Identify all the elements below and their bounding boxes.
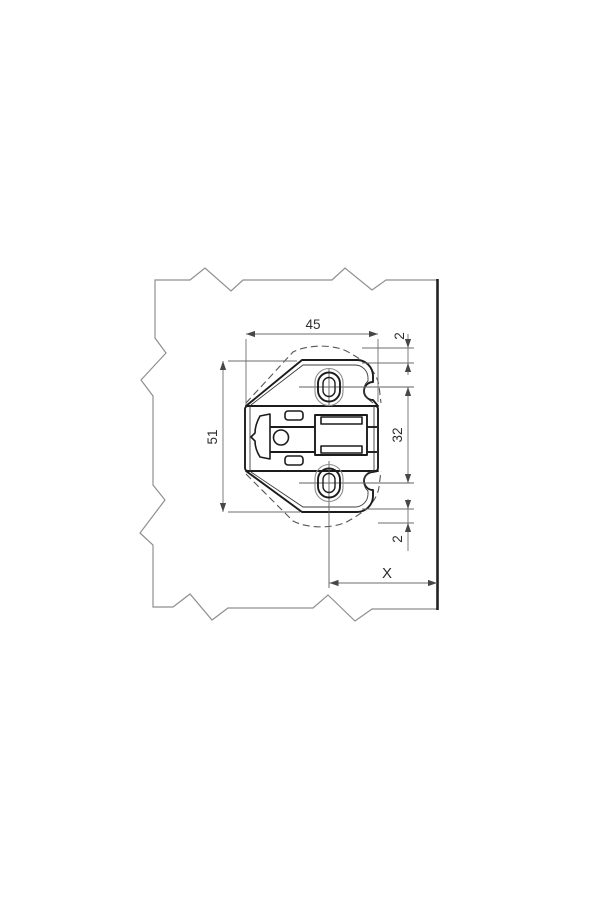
dim-2bot-arrow-lower [405,523,411,532]
dim-51-label: 51 [205,429,220,444]
dim-2top-extension-lines [362,348,414,363]
dim-32-label: 32 [390,427,405,442]
dim-45-arrow-left [246,331,255,337]
arm-socket-bottom-notch [321,446,362,453]
dimension-hole-spacing-32: 32 [390,387,411,483]
plate-top-wing [246,360,378,406]
drawing-canvas: 45 2 51 32 2 X [0,0,600,900]
dim-2top-arrow-lower [405,363,411,372]
arm-socket-top-notch [321,417,362,424]
plate-bottom-wing [246,471,378,512]
dim-51-arrow-top [220,361,226,370]
dim-32-arrow-bottom [405,474,411,483]
dim-2bot-label: 2 [390,535,405,543]
mounting-plate [245,360,414,588]
dim-2bot-extension-lines [362,509,414,523]
dim-32-arrow-top [405,387,411,396]
technical-drawing-page: 45 2 51 32 2 X [0,0,600,900]
upper-small-slot [285,411,303,420]
dimension-edge-distance-x: X [330,565,438,586]
dim-45-arrow-right [369,331,378,337]
dim-51-arrow-bottom [220,503,226,512]
dim-2bot-arrow-upper [405,500,411,509]
dim-x-arrow-right [428,580,437,586]
dim-45-label: 45 [305,317,320,332]
cam-hole [274,430,289,445]
dim-x-label: X [382,565,392,582]
lower-small-slot [285,456,303,465]
dim-x-arrow-left [330,580,339,586]
dim-2top-label: 2 [392,332,407,340]
